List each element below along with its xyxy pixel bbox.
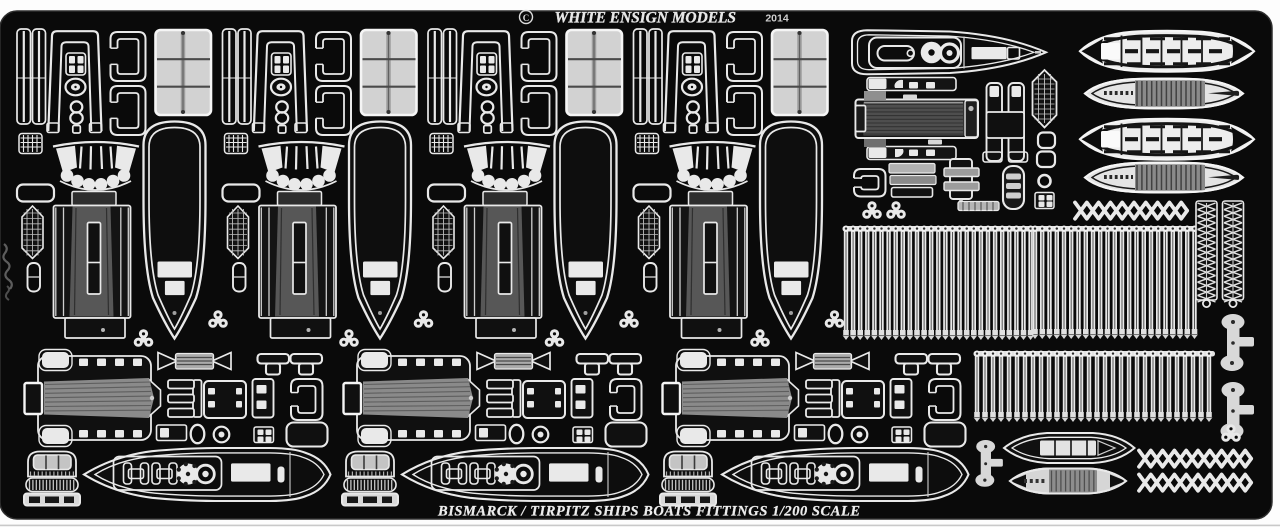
svg-text:WHITE ENSIGN MODELS: WHITE ENSIGN MODELS xyxy=(555,10,738,27)
svg-text:2014: 2014 xyxy=(765,13,789,25)
svg-text:BISMARCK / TIRPITZ SHIPS BOA: BISMARCK / TIRPITZ SHIPS BOATS FITTINGS … xyxy=(437,504,860,520)
svg-text:C: C xyxy=(523,13,530,23)
